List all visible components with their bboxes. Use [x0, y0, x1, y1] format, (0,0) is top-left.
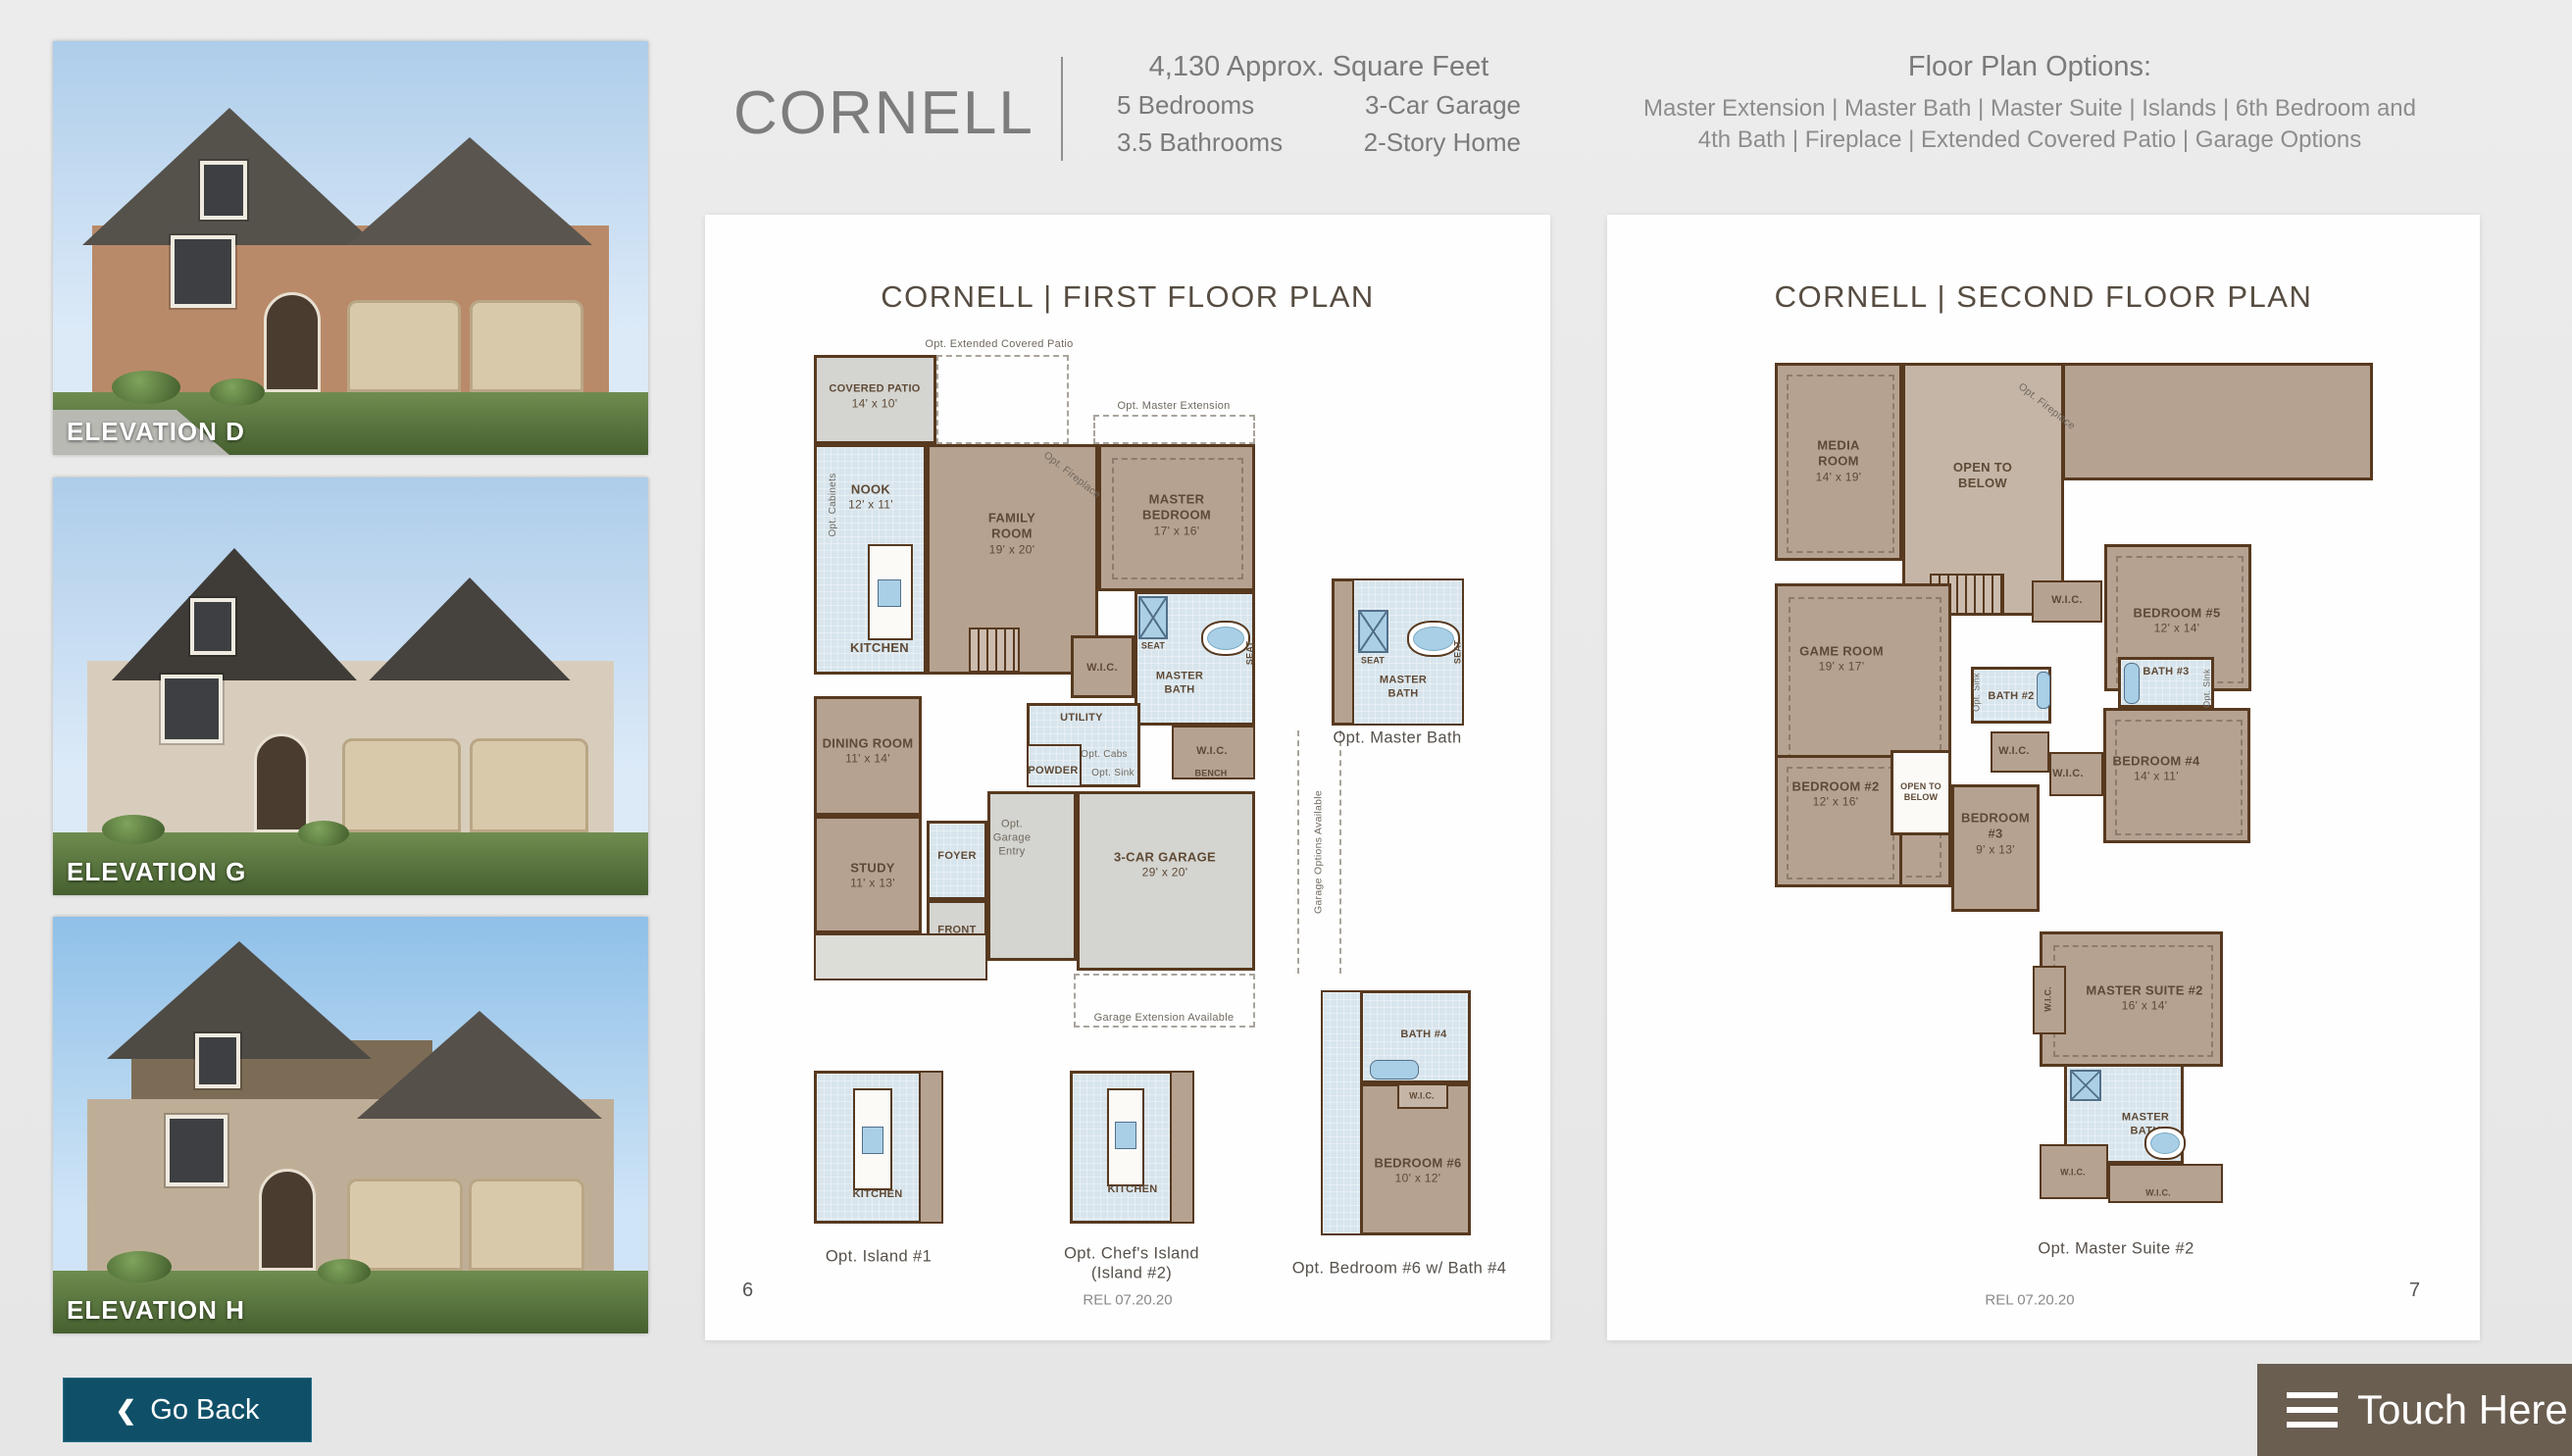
- room-upper-right: [2062, 363, 2373, 480]
- label-island1-kitchen: KITCHEN: [853, 1188, 903, 1202]
- label-master-suite2: MASTER SUITE #216' x 14': [2086, 982, 2202, 1013]
- caption-island2-line2: (Island #2): [1091, 1264, 1172, 1284]
- window: [166, 1115, 227, 1186]
- label-open-below: OPEN TO BELOW: [1943, 460, 2022, 492]
- options-line-2: 4th Bath | Fireplace | Extended Covered …: [1579, 125, 2481, 156]
- window: [190, 598, 235, 655]
- opt-shower: [1358, 610, 1388, 653]
- label-opt-sink-bath3: Opt. Sink: [2201, 669, 2212, 708]
- sqft-text: 4,130 Approx. Square Feet: [1103, 51, 1535, 83]
- header-divider: [1061, 57, 1063, 161]
- label-utility: UTILITY: [1060, 712, 1103, 726]
- first-floor-title: CORNELL | FIRST FLOOR PLAN: [705, 279, 1550, 315]
- second-floor-title: CORNELL | SECOND FLOOR PLAN: [1607, 279, 2480, 315]
- kiosk-page: ELEVATION D ELEVATION G ELEVATION H CORN…: [0, 0, 2572, 1456]
- caption-island1: Opt. Island #1: [826, 1247, 932, 1268]
- go-back-button[interactable]: ❮ Go Back: [63, 1378, 312, 1442]
- second-floor-panel: CORNELL | SECOND FLOOR PLAN MEDIA ROOM14…: [1607, 215, 2480, 1340]
- spec-garage: 3-Car Garage: [1365, 90, 1521, 121]
- page-number-7: 7: [2409, 1280, 2420, 1302]
- bush: [107, 1251, 172, 1282]
- caption-opt-master-bath: Opt. Master Bath: [1333, 728, 1461, 749]
- label-opt-garage-entry: Opt. Garage Entry: [986, 818, 1037, 858]
- label-garage: 3-CAR GARAGE29' x 20': [1114, 849, 1216, 879]
- label-seat-opt2: SEAT: [1452, 640, 1463, 664]
- label-bath4: BATH #4: [1400, 1029, 1446, 1042]
- bath3-tub: [2124, 663, 2140, 704]
- label-wic2: W.I.C.: [1196, 745, 1228, 759]
- label-opt-cabinets: Opt. Cabinets: [828, 473, 840, 536]
- bush: [298, 821, 349, 846]
- suite2-shower: [2070, 1070, 2101, 1101]
- elevation-label: ELEVATION H: [67, 1295, 245, 1326]
- touch-here-button[interactable]: Touch Here: [2257, 1364, 2572, 1456]
- label-opt-master-extension: Opt. Master Extension: [1117, 400, 1230, 414]
- label-suite2-wic-left: W.I.C.: [2060, 1167, 2086, 1178]
- page-number-6: 6: [742, 1280, 753, 1302]
- garage-door: [342, 738, 461, 832]
- label-bedroom3: BEDROOM #39' x 13': [1954, 810, 2038, 857]
- bush: [210, 378, 265, 406]
- label-suite2-wic-top: W.I.C.: [2042, 986, 2053, 1012]
- plan-specs: 4,130 Approx. Square Feet 5 Bedrooms 3-C…: [1103, 51, 1535, 158]
- label-master-bedroom: MASTER BEDROOM17' x 16': [1123, 491, 1231, 538]
- options-line-1: Master Extension | Master Bath | Master …: [1579, 93, 2481, 125]
- rel-date-sf: REL 07.20.20: [1985, 1292, 2074, 1309]
- label-master-bath: MASTER BATH: [1149, 670, 1210, 697]
- opt-extended-patio-outline: [936, 355, 1069, 444]
- label-bedroom4: BEDROOM #414' x 11': [2113, 753, 2200, 783]
- master-tub: [1201, 621, 1250, 656]
- first-floor-panel: CORNELL | FIRST FLOOR PLAN Opt. Extended…: [705, 215, 1550, 1340]
- opt-master-extension-outline: [1093, 415, 1255, 444]
- label-bedroom6: BEDROOM #610' x 12': [1374, 1155, 1462, 1185]
- label-bath2: BATH #2: [1988, 690, 2034, 704]
- label-wic-a: W.I.C.: [2051, 594, 2083, 608]
- garage-door: [469, 1179, 584, 1271]
- elevation-photo-h[interactable]: ELEVATION H: [53, 917, 648, 1333]
- bush: [112, 371, 180, 404]
- window: [171, 235, 235, 308]
- label-bedroom5: BEDROOM #512' x 14': [2134, 605, 2221, 635]
- cooktop: [878, 579, 901, 607]
- front-door: [264, 292, 321, 392]
- island1-sink: [862, 1127, 883, 1154]
- touch-here-label: Touch Here: [2357, 1386, 2568, 1433]
- label-open-below-small: OPEN TO BELOW: [1896, 781, 1945, 804]
- island2-sink: [1115, 1122, 1136, 1149]
- label-island2-kitchen: KITCHEN: [1108, 1183, 1158, 1197]
- bush: [102, 815, 165, 844]
- elevation-label: ELEVATION G: [67, 857, 246, 887]
- label-seat-opt: SEAT: [1361, 655, 1385, 666]
- bush: [318, 1259, 371, 1284]
- label-bath3: BATH #3: [2143, 666, 2189, 679]
- go-back-label: Go Back: [150, 1394, 259, 1427]
- label-family-room: FAMILY ROOM19' x 20': [973, 510, 1051, 557]
- room-garage: [1077, 791, 1255, 971]
- label-powder: POWDER: [1028, 765, 1078, 778]
- label-opt-sink-bath2: Opt. Sink: [1971, 673, 1982, 712]
- garage-door: [470, 738, 588, 832]
- inset-island1-wall: [919, 1071, 943, 1224]
- label-foyer: FOYER: [937, 850, 976, 864]
- label-nook: NOOK12' x 11': [848, 481, 893, 512]
- shower: [1138, 596, 1168, 639]
- label-opt-cabs: Opt. Cabs: [1081, 749, 1128, 762]
- front-door: [259, 1169, 316, 1271]
- label-bench: BENCH: [1194, 768, 1227, 778]
- back-chevron-icon: ❮: [115, 1395, 136, 1426]
- plan-name-title: CORNELL: [733, 78, 998, 148]
- front-door: [254, 733, 309, 832]
- garage-door: [347, 1179, 463, 1271]
- label-wic-c: W.I.C.: [2052, 768, 2084, 781]
- label-game: GAME ROOM19' x 17': [1799, 643, 1884, 674]
- label-media: MEDIA ROOM14' x 19': [1804, 437, 1873, 484]
- spec-stories: 2-Story Home: [1364, 127, 1521, 158]
- elevation-photo-g[interactable]: ELEVATION G: [53, 477, 648, 895]
- label-kitchen: KITCHEN: [850, 640, 909, 656]
- window: [200, 161, 247, 220]
- label-seat-shower: SEAT: [1141, 640, 1165, 651]
- spec-bathrooms: 3.5 Bathrooms: [1117, 127, 1283, 158]
- label-covered-patio: COVERED PATIO14' x 10': [829, 383, 920, 412]
- hamburger-menu-icon: [2287, 1392, 2338, 1428]
- spec-bedrooms: 5 Bedrooms: [1117, 90, 1254, 121]
- stairs-first-floor: [969, 628, 1020, 673]
- label-wic-master: W.I.C.: [1086, 662, 1118, 676]
- bath4-tub: [1370, 1060, 1419, 1079]
- suite2-tub: [2144, 1127, 2186, 1160]
- inset-island2-wall: [1170, 1071, 1194, 1224]
- garage-door: [470, 300, 583, 392]
- label-study: STUDY11' x 13': [850, 860, 895, 890]
- elevation-label: ELEVATION D: [67, 417, 245, 447]
- label-garage-extension: Garage Extension Available: [1094, 1012, 1235, 1026]
- label-bedroom2: BEDROOM #212' x 16': [1792, 778, 1880, 809]
- label-opt-master-bath-room: MASTER BATH: [1373, 674, 1434, 701]
- room-garage-entry: [987, 791, 1077, 961]
- label-opt-sink-ff: Opt. Sink: [1091, 768, 1135, 780]
- label-bed6-wic: W.I.C.: [1409, 1090, 1435, 1101]
- caption-suite2: Opt. Master Suite #2: [2038, 1239, 2194, 1260]
- options-title: Floor Plan Options:: [1579, 51, 2481, 83]
- label-dining: DINING ROOM11' x 14': [819, 735, 917, 766]
- porch-strip: [814, 933, 987, 980]
- garage-door: [347, 300, 461, 392]
- label-opt-extended-patio: Opt. Extended Covered Patio: [925, 338, 1073, 352]
- label-wic-b: W.I.C.: [1998, 745, 2030, 759]
- label-garage-options: Garage Options Available: [1312, 790, 1325, 914]
- floor-plan-options: Floor Plan Options: Master Extension | M…: [1579, 51, 2481, 157]
- window: [161, 675, 223, 743]
- label-suite2-wic-bottom: W.I.C.: [2145, 1187, 2171, 1198]
- elevation-photo-d[interactable]: ELEVATION D: [53, 41, 648, 455]
- label-seat-window: SEAT: [1244, 641, 1255, 665]
- inset-bed6-hall: [1321, 990, 1365, 1235]
- caption-bedroom6: Opt. Bedroom #6 w/ Bath #4: [1292, 1259, 1507, 1280]
- bath2-tub: [2037, 672, 2050, 709]
- window: [195, 1033, 240, 1088]
- rel-date-ff: REL 07.20.20: [1083, 1292, 1172, 1309]
- caption-island2-line1: Opt. Chef's Island: [1064, 1244, 1199, 1265]
